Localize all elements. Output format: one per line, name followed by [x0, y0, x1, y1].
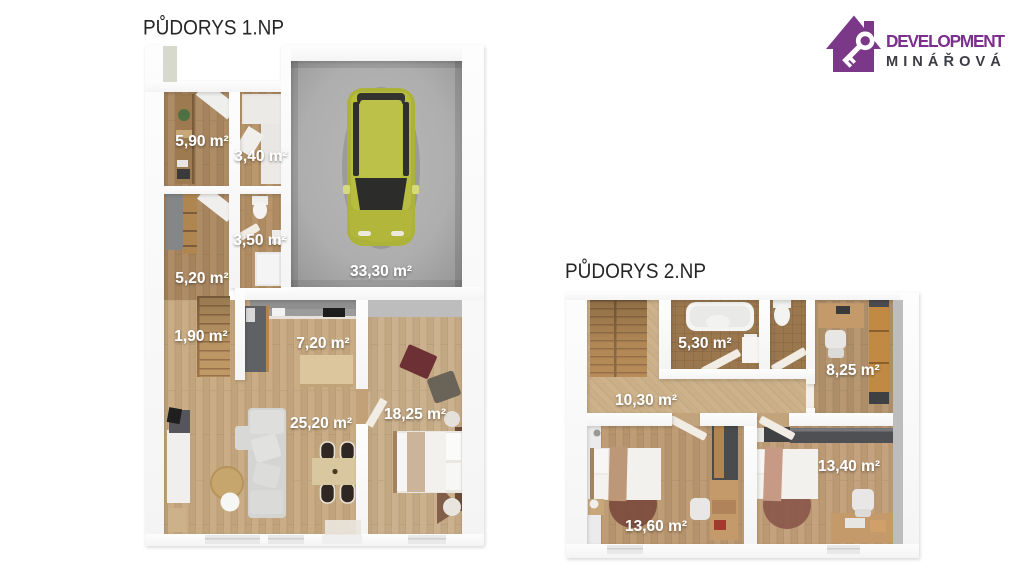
- svg-text:5,20 m²: 5,20 m²: [175, 270, 228, 287]
- svg-text:5,90 m²: 5,90 m²: [175, 133, 228, 150]
- svg-text:3,50 m²: 3,50 m²: [233, 232, 286, 249]
- svg-text:DEVELOPMENT: DEVELOPMENT: [886, 31, 1006, 51]
- svg-text:13,60 m²: 13,60 m²: [625, 518, 687, 535]
- svg-text:33,30 m²: 33,30 m²: [350, 263, 412, 280]
- svg-text:10,30 m²: 10,30 m²: [615, 392, 677, 409]
- svg-text:13,40 m²: 13,40 m²: [818, 458, 880, 475]
- svg-text:MINÁŘOVÁ: MINÁŘOVÁ: [886, 52, 1005, 70]
- svg-text:PŮDORYS 1.NP: PŮDORYS 1.NP: [143, 15, 284, 40]
- svg-text:1,90 m²: 1,90 m²: [174, 328, 227, 345]
- svg-text:25,20 m²: 25,20 m²: [290, 415, 352, 432]
- svg-text:18,25 m²: 18,25 m²: [384, 406, 446, 423]
- svg-text:3,40 m²: 3,40 m²: [234, 148, 287, 165]
- svg-text:7,20 m²: 7,20 m²: [296, 335, 349, 352]
- svg-text:5,30 m²: 5,30 m²: [678, 335, 731, 352]
- svg-text:8,25 m²: 8,25 m²: [826, 362, 879, 379]
- svg-text:PŮDORYS 2.NP: PŮDORYS 2.NP: [565, 258, 706, 283]
